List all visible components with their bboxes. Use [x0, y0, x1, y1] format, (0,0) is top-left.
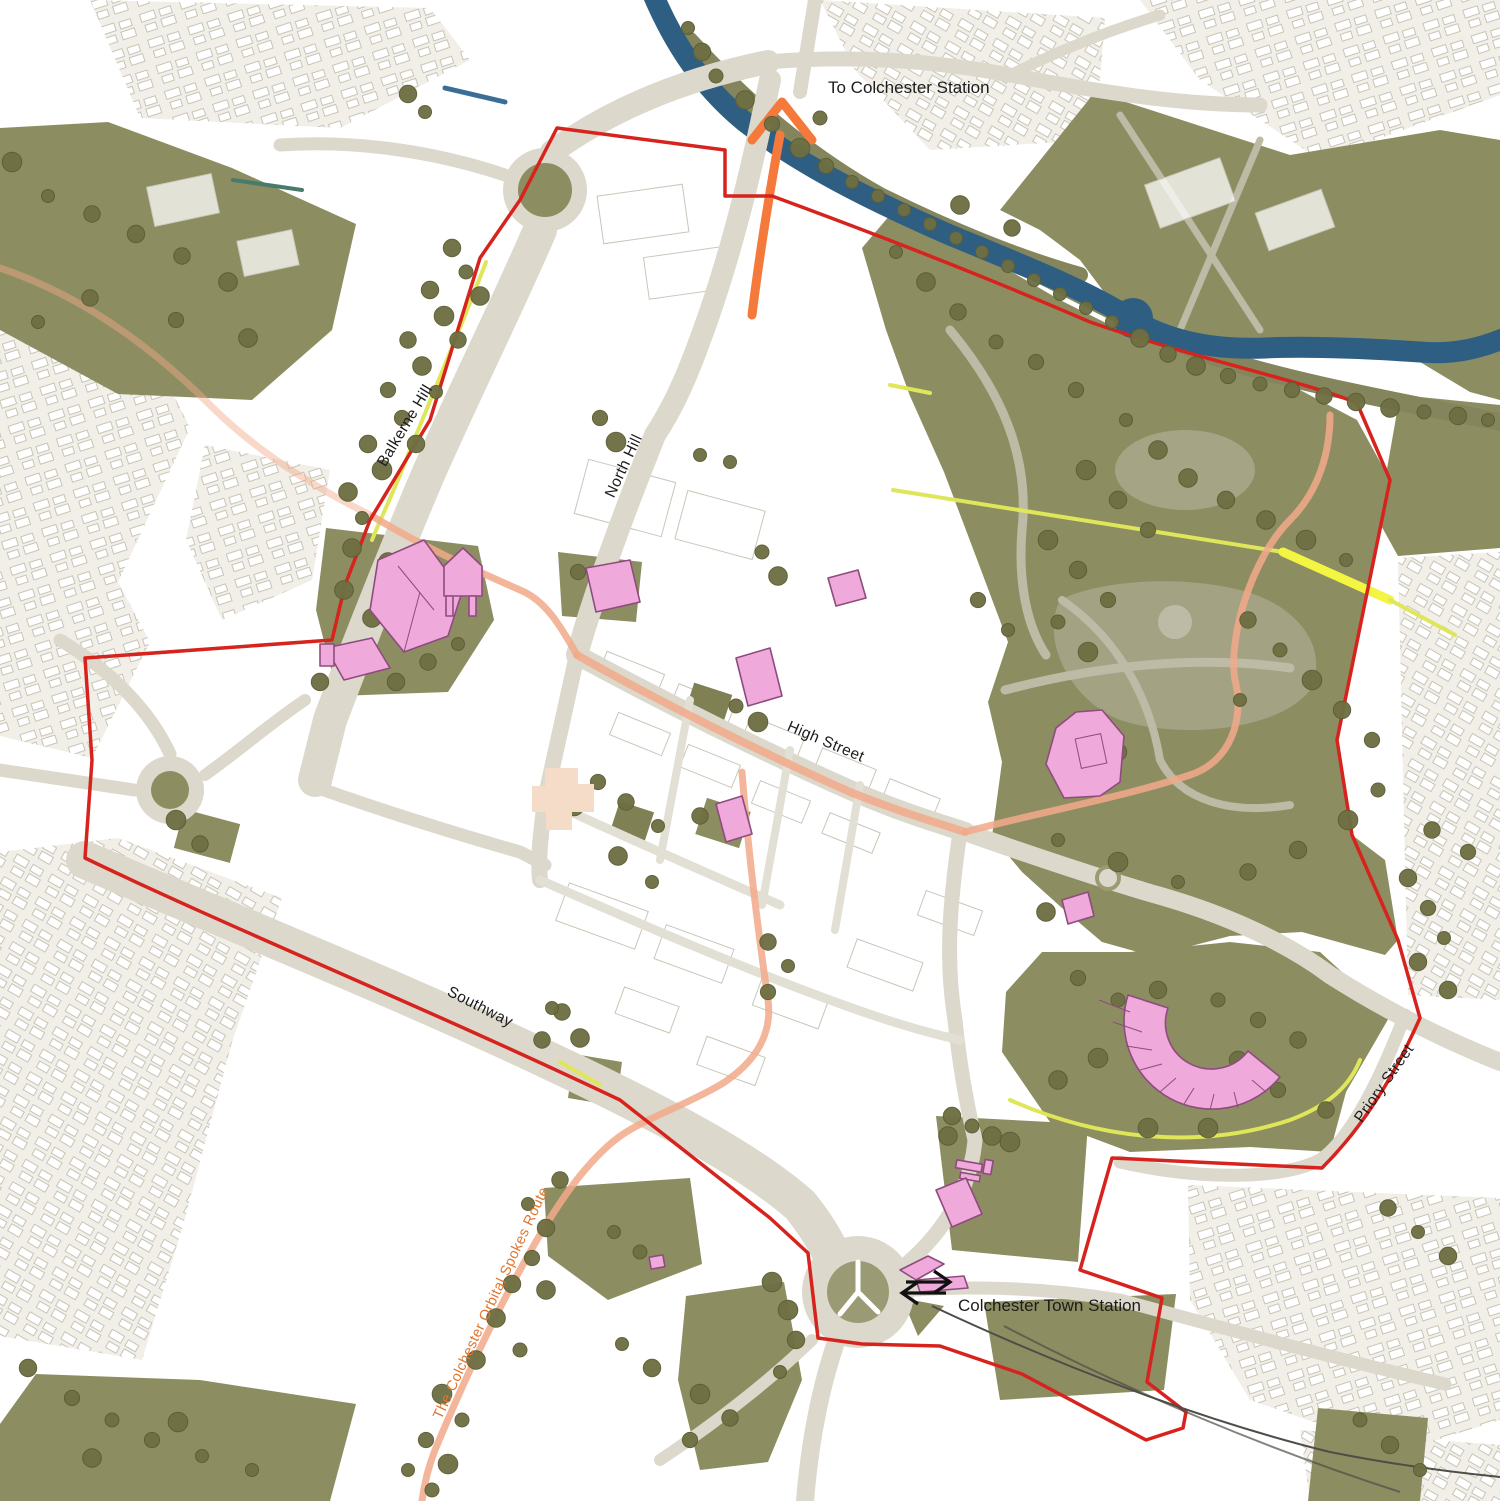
map-canvas: To Colchester Station Colchester Town St…: [0, 0, 1500, 1501]
to-station-label: To Colchester Station: [828, 78, 990, 97]
landmark-building: [586, 560, 640, 612]
town-station-label: Colchester Town Station: [958, 1296, 1141, 1315]
